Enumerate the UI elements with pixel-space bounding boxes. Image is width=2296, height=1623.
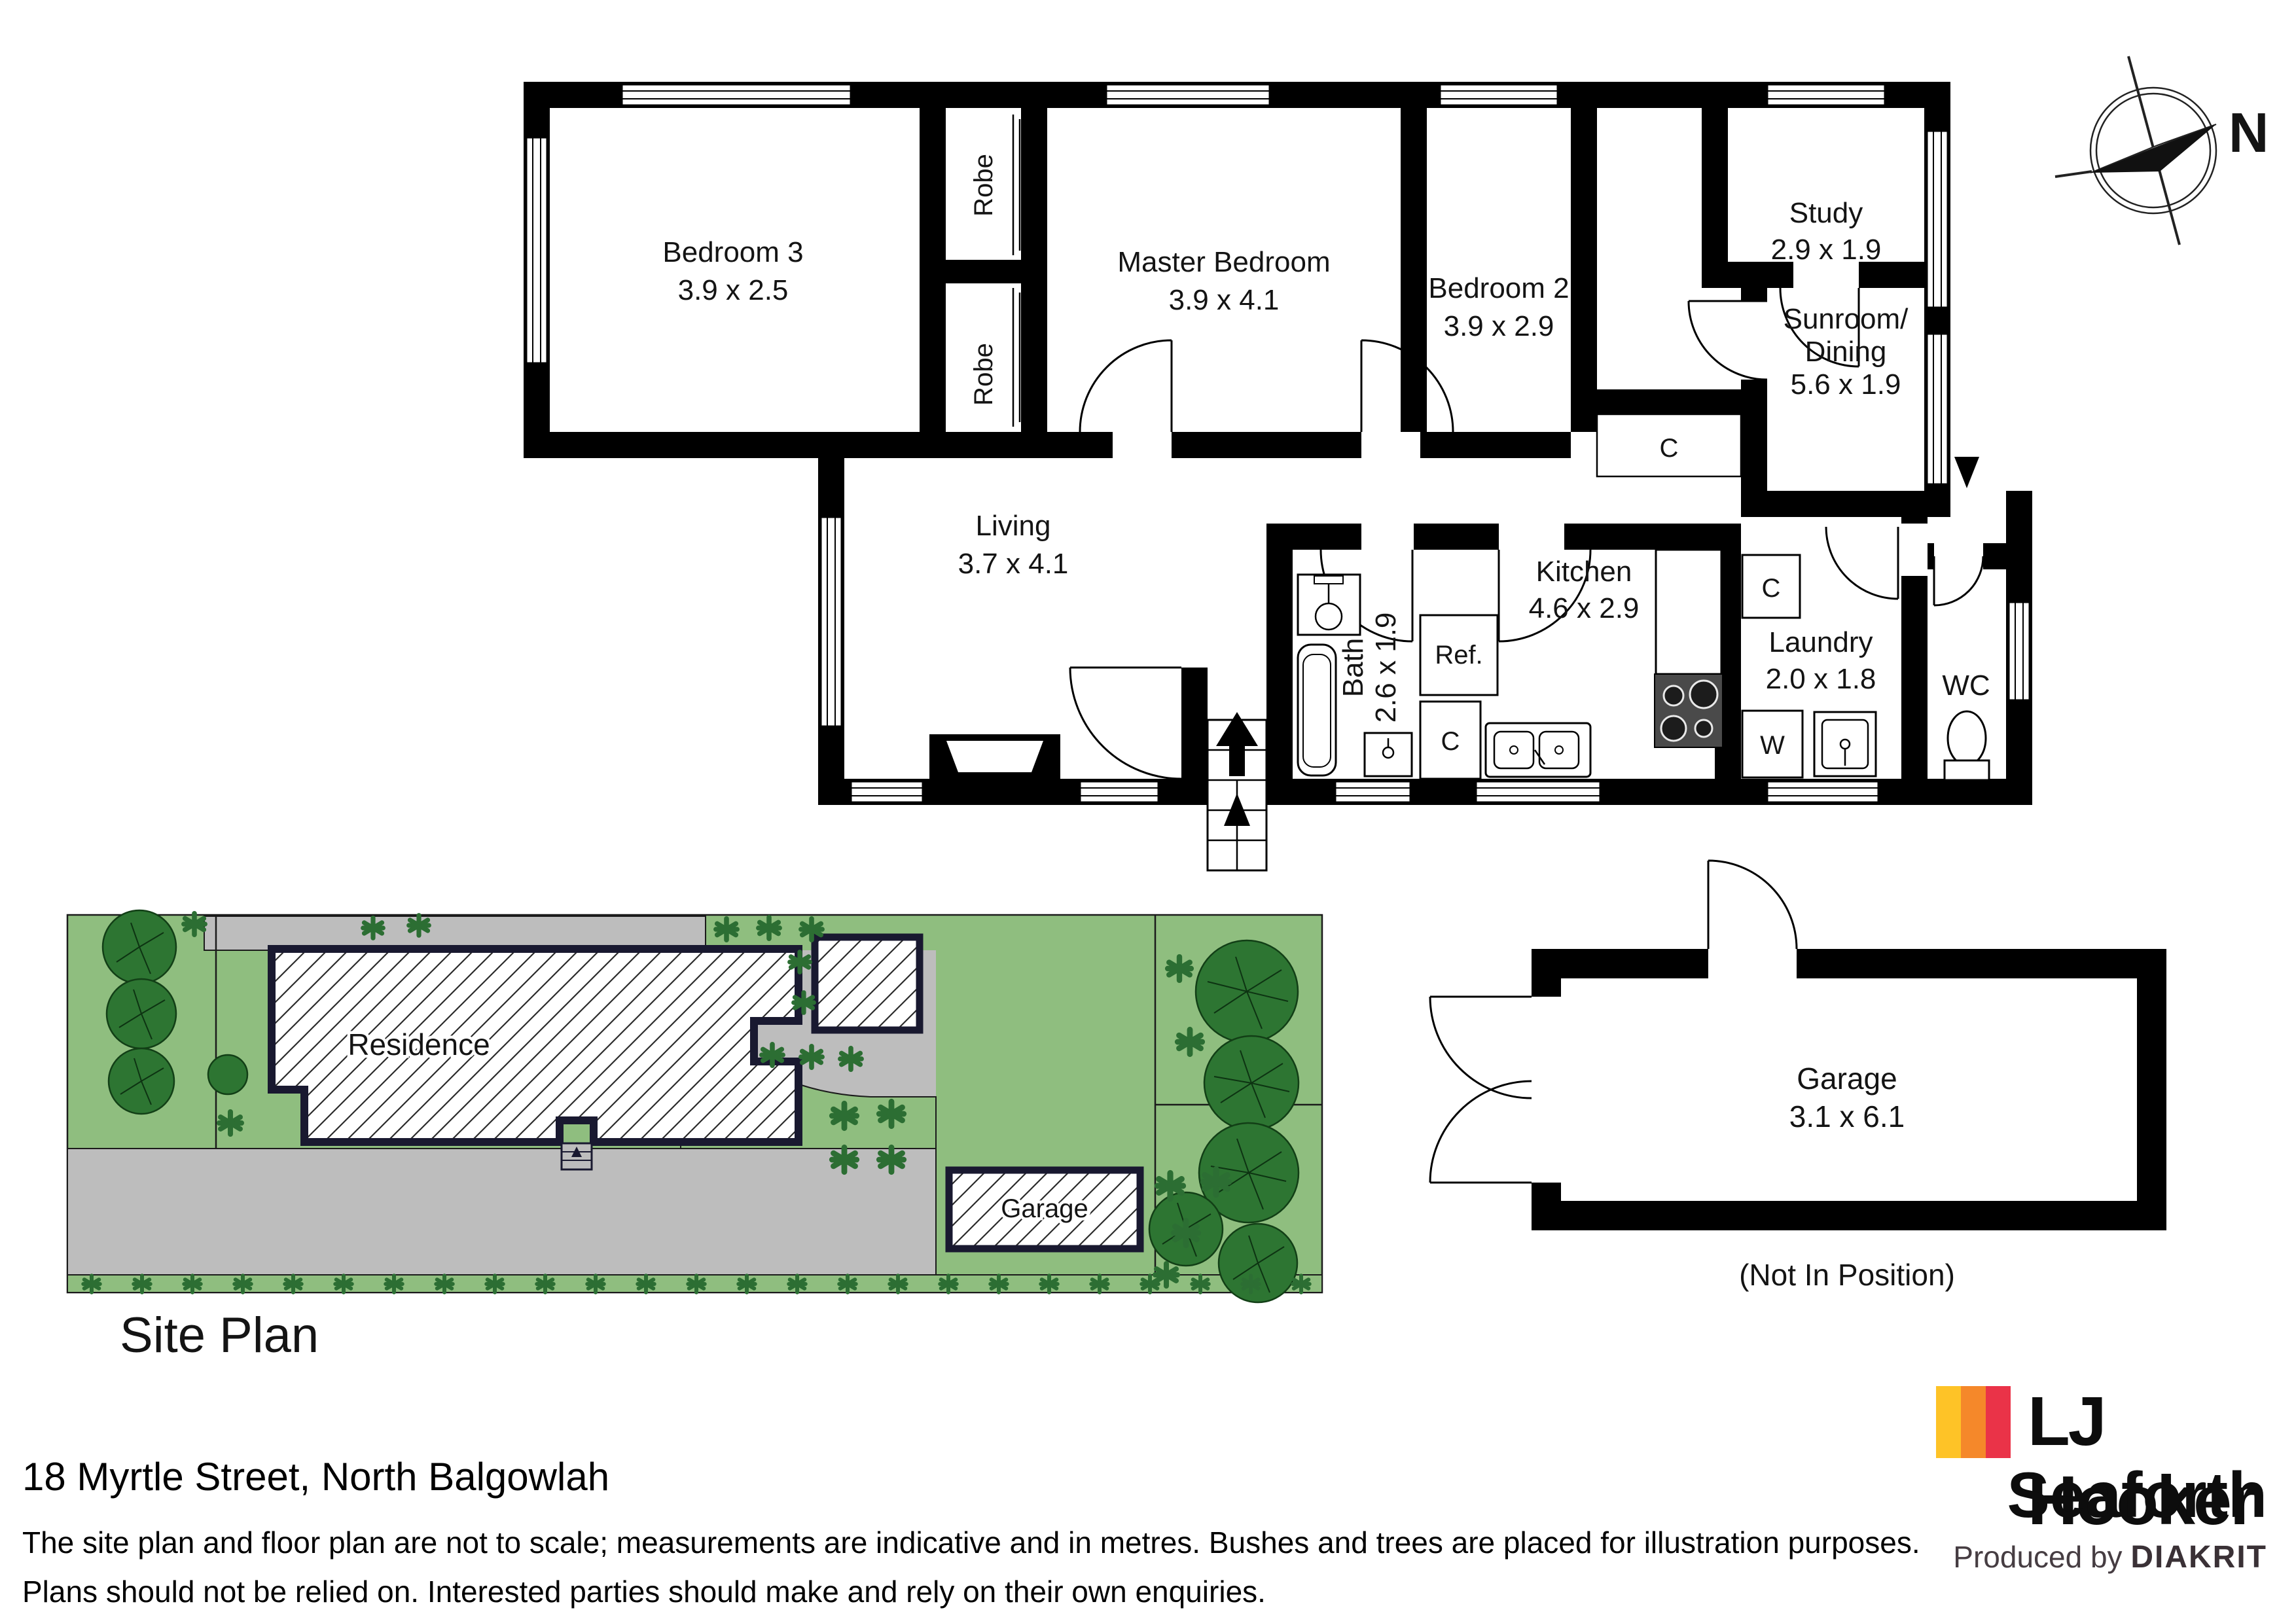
fixture-label-robe-top: Robe	[969, 154, 998, 217]
laundry-sink	[1814, 712, 1876, 776]
window	[1927, 334, 1948, 484]
window	[1080, 781, 1158, 802]
room-label-sunroom-1: Sunroom/	[1784, 303, 1909, 335]
logo-stripe-red	[1986, 1386, 2011, 1458]
garage-plan-label: Garage	[1797, 1061, 1897, 1096]
produced-by-label: Produced by	[1953, 1540, 2122, 1574]
bathtub	[1298, 645, 1336, 776]
office-name: Seaforth	[2007, 1458, 2267, 1532]
room-dims-master: 3.9 x 4.1	[1169, 284, 1280, 316]
shower	[1298, 575, 1360, 635]
window	[821, 517, 842, 726]
room-label-laundry: Laundry	[1768, 626, 1873, 658]
room-dims-laundry: 2.0 x 1.8	[1766, 663, 1876, 695]
window	[526, 137, 547, 363]
site-residence-label: Residence	[348, 1027, 490, 1061]
floor-plan-walls	[524, 82, 2032, 805]
disclaimer-line-2: Plans should not be relied on. Intereste…	[22, 1574, 1266, 1609]
site-garage-label: Garage	[1001, 1194, 1088, 1223]
site-shed	[815, 937, 920, 1030]
kitchen-sink	[1486, 723, 1590, 777]
room-label-bedroom2: Bedroom 2	[1428, 272, 1569, 304]
window	[1927, 131, 1948, 308]
window	[1767, 781, 1878, 802]
room-label-sunroom-2: Dining	[1805, 336, 1887, 368]
window	[1767, 84, 1885, 105]
room-label-wc: WC	[1942, 669, 1990, 702]
floor-plan: Bedroom 3 3.9 x 2.5 Master Bedroom 3.9 x…	[524, 82, 2032, 870]
site-plan: Residence Garage	[67, 910, 1322, 1363]
producer-name: DIAKRIT	[2130, 1540, 2267, 1575]
bath-sink	[1365, 733, 1412, 776]
window	[2009, 602, 2030, 700]
rear-entry-arrow-icon	[1954, 457, 1979, 488]
garage-doors	[1430, 861, 1797, 1183]
room-label-bath: Bath	[1337, 638, 1369, 698]
logo-stripe-orange	[1961, 1386, 1986, 1458]
stove	[1655, 674, 1723, 747]
room-label-bedroom3: Bedroom 3	[662, 236, 803, 268]
room-label-living: Living	[976, 510, 1051, 542]
plan-canvas: Bedroom 3 3.9 x 2.5 Master Bedroom 3.9 x…	[0, 0, 2296, 1623]
room-label-master: Master Bedroom	[1117, 246, 1330, 278]
door-wc	[1934, 556, 1983, 605]
room-dims-sunroom: 5.6 x 1.9	[1791, 368, 1901, 401]
garage-door-top	[1708, 861, 1797, 949]
window	[1476, 781, 1600, 802]
fixture-label-ref: Ref.	[1435, 641, 1482, 669]
produced-by-line: Produced by DIAKRIT	[1953, 1539, 2267, 1575]
kitchen-bench	[1656, 550, 1721, 674]
room-label-kitchen: Kitchen	[1536, 556, 1632, 588]
room-dims-study: 2.9 x 1.9	[1771, 234, 1882, 266]
room-dims-kitchen: 4.6 x 2.9	[1529, 592, 1640, 624]
disclaimer-line-1: The site plan and floor plan are not to …	[22, 1525, 1920, 1560]
window	[622, 84, 851, 105]
fixture-label-robe-bottom: Robe	[969, 343, 998, 406]
room-label-study: Study	[1789, 197, 1863, 229]
site-residence-steps	[562, 1143, 592, 1169]
ljhooker-logo-icon	[1936, 1386, 2011, 1458]
garage-plan-note: (Not In Position)	[1739, 1258, 1955, 1292]
room-dims-living: 3.7 x 4.1	[958, 548, 1069, 580]
door-front	[1070, 668, 1181, 779]
window	[1440, 84, 1558, 105]
room-dims-bedroom2: 3.9 x 2.9	[1444, 310, 1554, 342]
window	[1335, 781, 1410, 802]
fixture-label-washer: W	[1760, 731, 1785, 760]
room-dims-bath: 2.6 x 1.9	[1370, 613, 1402, 723]
page: Bedroom 3 3.9 x 2.5 Master Bedroom 3.9 x…	[0, 0, 2296, 1623]
toilet	[1945, 711, 1989, 780]
site-plan-title: Site Plan	[120, 1308, 319, 1363]
compass: N	[2055, 56, 2269, 245]
fireplace	[929, 734, 1060, 779]
site-driveway-bottom	[67, 1149, 936, 1276]
room-dims-bedroom3: 3.9 x 2.5	[678, 274, 789, 306]
property-address: 18 Myrtle Street, North Balgowlah	[22, 1454, 609, 1499]
door-sunroom	[1689, 301, 1767, 380]
door-rear-hall	[1826, 527, 1898, 599]
window	[1106, 84, 1270, 105]
garage-plan: Garage 3.1 x 6.1 (Not In Position)	[1430, 861, 2166, 1292]
fixture-label-cupboard-laundry: C	[1762, 574, 1781, 603]
compass-north-label: N	[2229, 102, 2269, 164]
garage-plan-dims: 3.1 x 6.1	[1789, 1099, 1905, 1133]
fixture-label-cupboard-hall: C	[1660, 434, 1679, 463]
fixture-label-cupboard-kitchen: C	[1441, 727, 1460, 756]
door-master	[1080, 340, 1172, 432]
logo-stripe-yellow	[1936, 1386, 1961, 1458]
window	[851, 781, 923, 802]
